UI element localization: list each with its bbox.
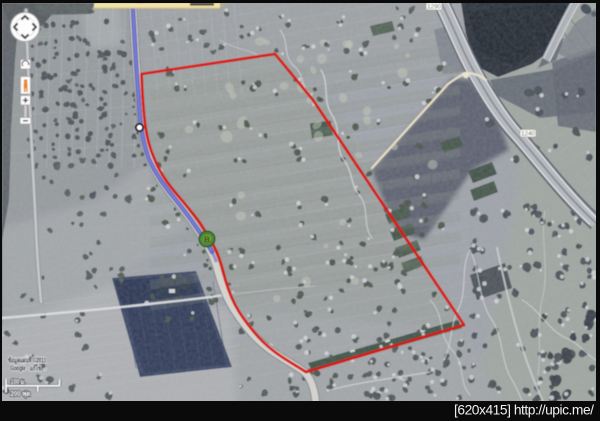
svg-text:B: B (204, 234, 210, 244)
svg-text:Google - แก้ไข →: Google - แก้ไข → (10, 364, 47, 373)
svg-text:1290: 1290 (427, 3, 441, 10)
svg-text:200 ฟุต: 200 ฟุต (11, 390, 31, 398)
svg-text:[620x415] http://upic.me/: [620x415] http://upic.me/ (454, 403, 594, 418)
svg-text:100 ม.: 100 ม. (11, 379, 26, 386)
svg-text:1240: 1240 (521, 130, 535, 137)
